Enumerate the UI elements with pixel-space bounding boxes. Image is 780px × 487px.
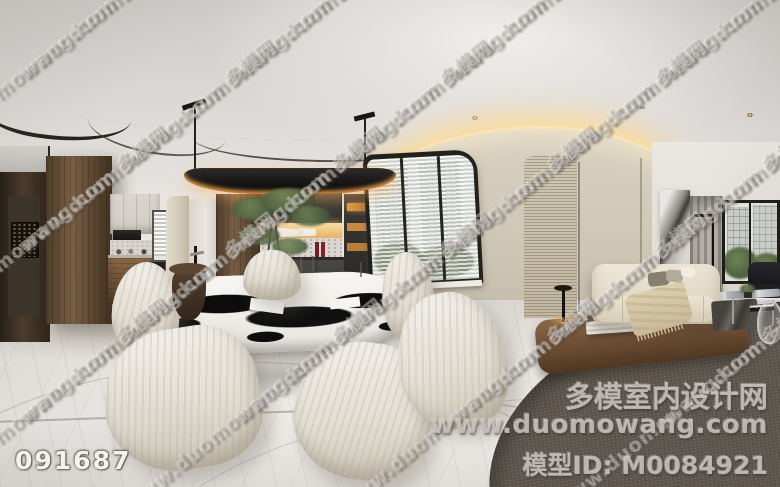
spotlight-icon (747, 113, 753, 117)
sofa-pillow-white (681, 267, 695, 277)
marble-art-panel (660, 190, 690, 268)
panorama-image: www.duomowang.com 多模网www.duomowang.com 多… (0, 0, 780, 487)
spotlight-icon (640, 106, 645, 109)
brand-site-url: www.duomowang.com (430, 410, 768, 440)
dining-stool-top (169, 263, 209, 275)
plant-foliage (290, 206, 330, 226)
hallway-ceiling (0, 146, 48, 172)
wine-bottles (315, 242, 319, 258)
chrome-cart (757, 300, 780, 344)
spotlight-icon (472, 116, 478, 120)
slat-panel (524, 156, 577, 318)
table-lamp-pole (562, 288, 565, 322)
model-id-label: 模型ID: (523, 451, 613, 480)
wood-column (46, 156, 112, 324)
model-id-value: M0084921 (621, 451, 768, 480)
pendant-wire (194, 104, 196, 174)
pendant-wire (364, 116, 366, 174)
wall-groove (578, 162, 580, 312)
hallway-artwork (11, 222, 39, 258)
table-plant-pot (744, 292, 752, 298)
coffee-table-leg (732, 298, 734, 324)
side-table-dark (711, 298, 759, 331)
wine-glass (300, 258, 302, 273)
table-lamp-glow (548, 313, 588, 327)
photo-id-stamp: 091687 (15, 446, 131, 475)
brand-model-id: 模型ID: M0084921 (523, 446, 768, 482)
kitchen-counter-items (114, 247, 154, 255)
table-lamp-shade (554, 285, 572, 291)
